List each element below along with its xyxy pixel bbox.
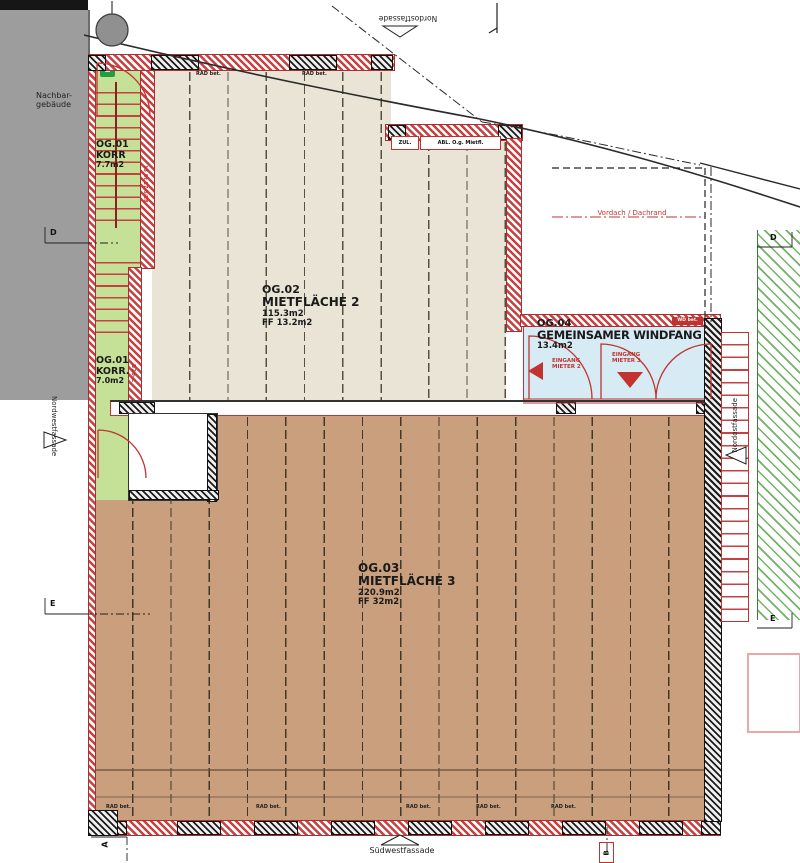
zul-box: ZUL. xyxy=(391,136,419,150)
door-arcs xyxy=(97,63,711,478)
site-boundary-lines xyxy=(84,6,800,322)
rad-label: RAD bet. xyxy=(406,804,431,810)
entrance-mieter3-label: EINGANG MIETER 3 xyxy=(612,352,641,364)
abl-box: ABL. O.g. Mietfl. xyxy=(420,136,501,150)
room-label-og03: OG.03 MIETFLÄCHE 3 220.9m2 FF 32m2 xyxy=(358,562,456,608)
rad-label: RAD bet. xyxy=(256,804,281,810)
facade-triangle-south xyxy=(381,835,419,845)
door-arc-og03-left xyxy=(98,430,146,478)
vordach-label: Vordach / Dachrand xyxy=(558,209,706,217)
door-note: B20-C xyxy=(130,364,136,382)
windfang-threshold xyxy=(523,399,705,403)
room-label-korr-bottom: OG.01 KORR. 7.0m2 xyxy=(96,356,129,386)
grid-marker-b-bottom: B xyxy=(599,842,614,863)
windfang-badge: WD bet. xyxy=(672,317,703,325)
entrance-mieter2-label: EINGANG MIETER 2 xyxy=(552,358,581,370)
rad-label: RAD bet. xyxy=(551,804,576,810)
rad-label: RAD bet. xyxy=(196,71,221,77)
room-name: MIETFLÄCHE 3 xyxy=(358,575,456,588)
room-area: 13.4m2 xyxy=(537,342,701,352)
entrance-mieter3-arrow-icon xyxy=(617,372,643,388)
room-name: MIETFLÄCHE 2 xyxy=(262,296,360,309)
facade-triangle-north xyxy=(383,26,417,37)
grid-marker-d-left: D xyxy=(50,228,57,237)
tree-icon xyxy=(96,1,128,46)
facade-label-nordwest: Nordwestfassade xyxy=(50,396,58,456)
room-area: 7.7m2 xyxy=(96,161,129,170)
grid-marker-e-right: E xyxy=(770,614,775,623)
facade-label-nordost-right: Nordostfassade xyxy=(731,398,739,452)
facade-label-suedwest: Südwestfassade xyxy=(352,846,452,855)
north-arrow-icon xyxy=(489,3,497,33)
room-area: 7.0m2 xyxy=(96,377,129,386)
rad-label: RAD bet. xyxy=(302,71,327,77)
entrance-mieter2-arrow-icon xyxy=(528,362,543,380)
door-arc-corridor-top xyxy=(97,63,150,116)
floor-joint-lines xyxy=(95,770,704,797)
floor-plan-canvas: Nachbar- gebäude ⌂ xyxy=(0,0,800,863)
room-label-og02: OG.02 MIETFLÄCHE 2 115.3m2 FF 13.2m2 xyxy=(262,284,360,329)
line-overlay xyxy=(0,0,800,863)
grid-marker-b-letter: B xyxy=(603,850,611,855)
vordach-outline xyxy=(552,168,705,330)
rad-label: RAD bet. xyxy=(106,804,131,810)
facade-label-nordost-top: Nordostfassade xyxy=(358,14,458,23)
room-label-korr-top: OG.01 KORR 7.7m2 xyxy=(96,140,129,170)
grid-marker-a-bottom: A xyxy=(101,841,110,847)
room-ff: FF 13.2m2 xyxy=(262,319,360,329)
grid-marker-d-right: D xyxy=(770,233,777,242)
stair-note: 13 St 17,5/28 xyxy=(142,165,148,203)
rad-label: RAD bet. xyxy=(476,804,501,810)
grid-marker-e-left: E xyxy=(50,599,55,608)
room-ff: FF 32m2 xyxy=(358,598,456,608)
